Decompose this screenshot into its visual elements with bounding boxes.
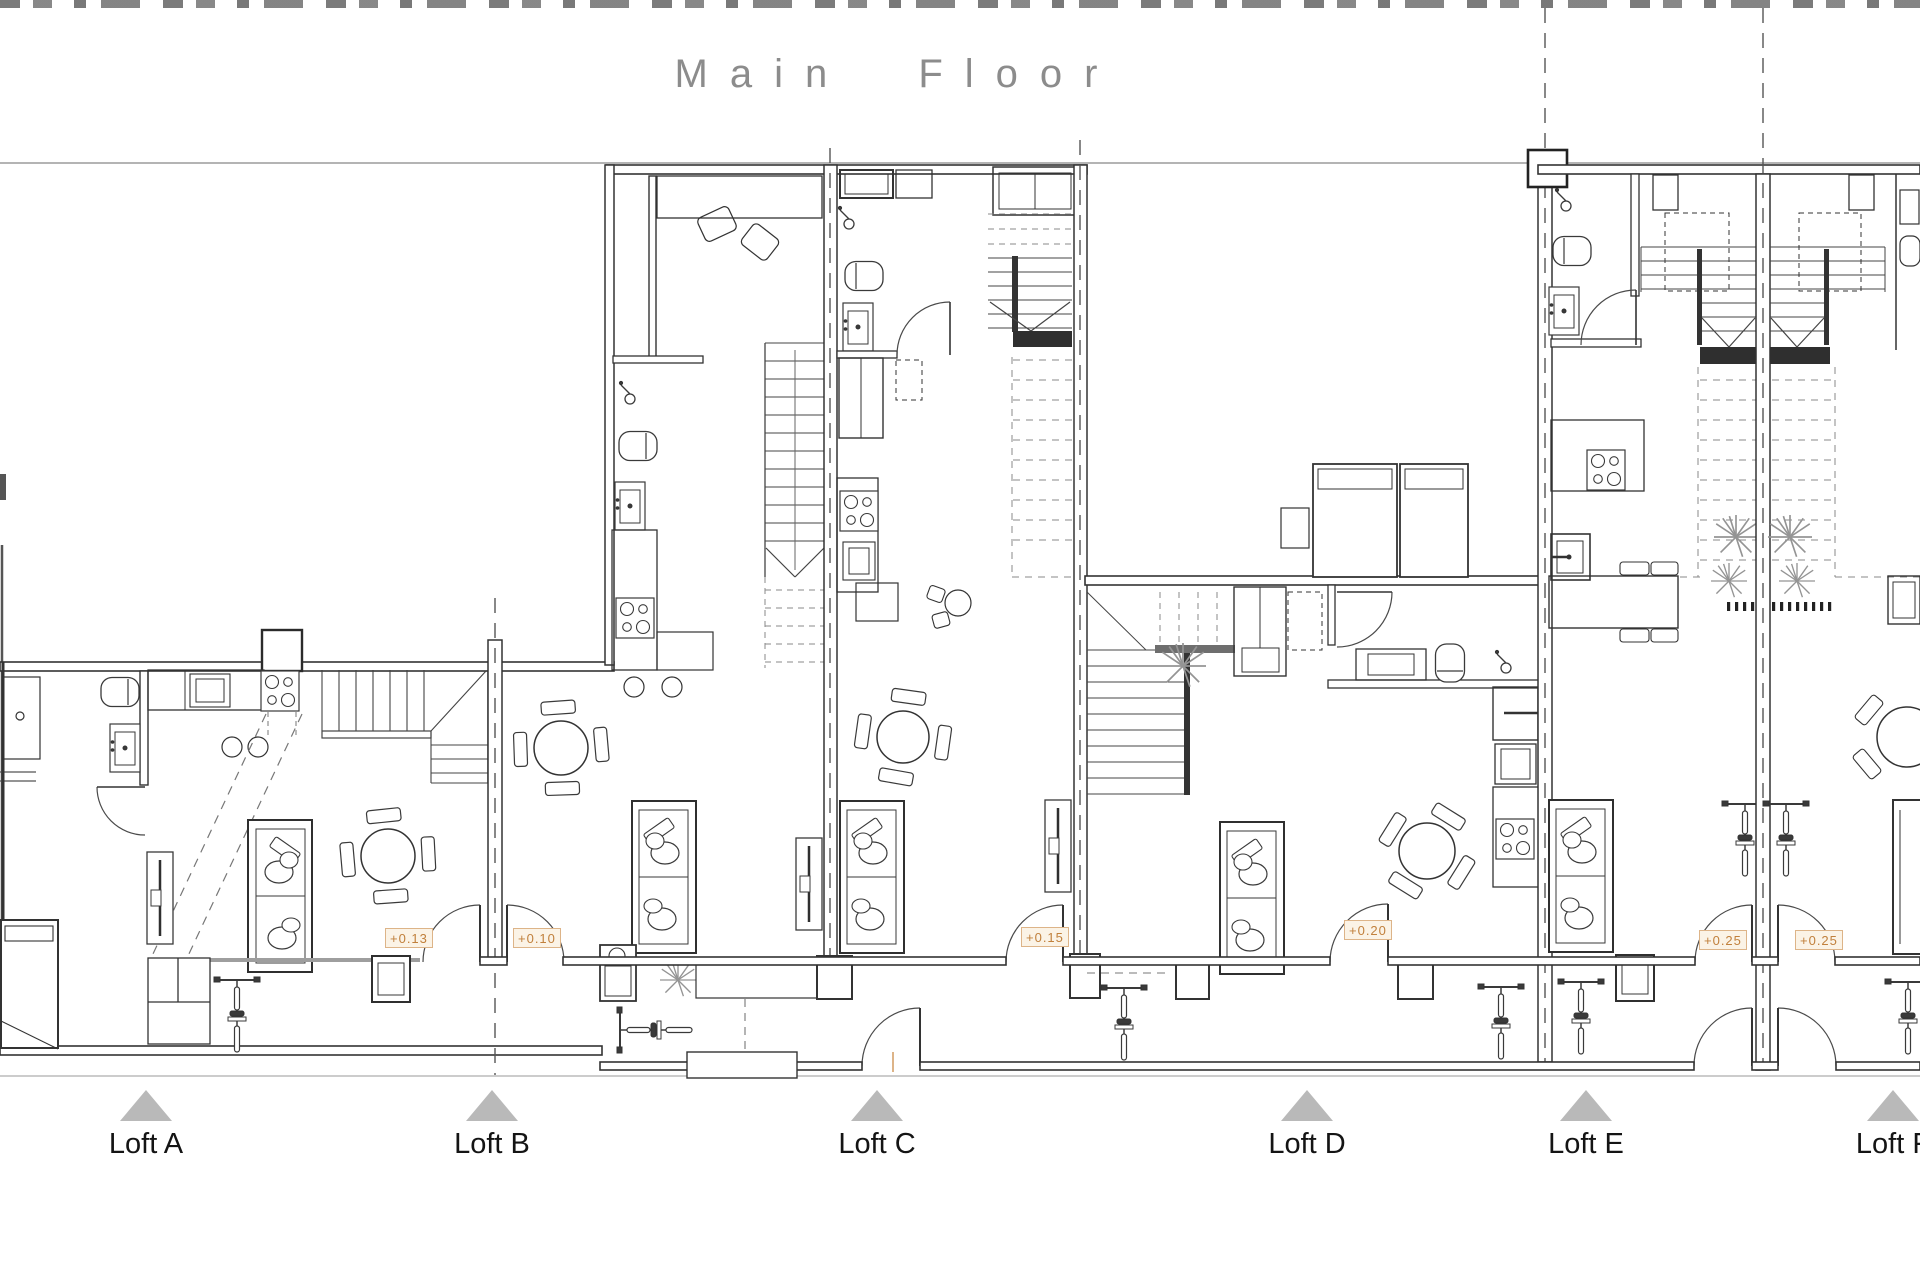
sofa bbox=[1220, 822, 1284, 974]
washbasin-icon bbox=[110, 724, 140, 772]
loft-b-label: Loft B bbox=[454, 1128, 530, 1161]
palm-plant-icon bbox=[1711, 563, 1747, 597]
shower-icon bbox=[838, 206, 854, 229]
palm-plant-icon bbox=[1779, 563, 1815, 597]
planter-hatch bbox=[1727, 602, 1754, 611]
wall-column bbox=[262, 630, 302, 671]
loft-f-entrance-triangle-icon bbox=[1867, 1090, 1919, 1121]
planter-hatch bbox=[1772, 602, 1831, 611]
loft-e-label: Loft E bbox=[1548, 1128, 1624, 1161]
loft-b-dining-table bbox=[513, 700, 609, 796]
loft-b-stairs bbox=[765, 343, 825, 668]
loft-e-kitchen bbox=[1551, 420, 1644, 580]
loft-a-stairs bbox=[322, 670, 488, 783]
bicycle-icon bbox=[1478, 984, 1524, 1059]
toilet-icon bbox=[619, 432, 657, 461]
party-wall-a-b bbox=[488, 598, 502, 1075]
loft-a-label: Loft A bbox=[109, 1128, 183, 1161]
stove-icon bbox=[840, 491, 878, 531]
sofa bbox=[248, 820, 312, 972]
entry-steps bbox=[148, 958, 210, 1044]
loft-d-wardrobe bbox=[1234, 587, 1322, 676]
loft-f-label: Loft F bbox=[1856, 1128, 1920, 1161]
bicycle-icon bbox=[1885, 979, 1920, 1054]
floor-plan-drawing bbox=[0, 0, 1920, 1280]
loft-a-bed bbox=[1, 920, 58, 1049]
toilet-icon bbox=[101, 678, 139, 707]
washbasin-icon bbox=[615, 482, 645, 530]
loft-a-bathroom bbox=[3, 671, 148, 835]
loft-d-dining-table bbox=[1378, 802, 1476, 900]
loft-e-bathroom bbox=[1549, 174, 1641, 347]
floor-plan-sheet: Main Floor bbox=[0, 0, 1920, 1280]
washbasin-icon bbox=[1549, 287, 1579, 335]
loft-d-bathroom bbox=[1328, 585, 1541, 688]
elevation-marker-loft-d: +0.20 bbox=[1344, 920, 1392, 940]
stove-icon bbox=[1496, 819, 1534, 859]
shower-icon bbox=[619, 381, 635, 404]
loft-d-entrance-triangle-icon bbox=[1281, 1090, 1333, 1121]
palm-plant-icon bbox=[1768, 515, 1812, 557]
loft-a-kitchen bbox=[148, 670, 299, 757]
loft-a-entrance-triangle-icon bbox=[120, 1090, 172, 1121]
elevation-marker-loft-c: +0.15 bbox=[1021, 927, 1069, 947]
palm-plant-icon bbox=[660, 962, 696, 996]
loft-f-porch bbox=[1778, 979, 1920, 1066]
tv-unit bbox=[147, 852, 173, 944]
elevation-marker-loft-b: +0.10 bbox=[513, 928, 561, 948]
loft-b-entrance-triangle-icon bbox=[466, 1090, 518, 1121]
sofa bbox=[632, 801, 696, 953]
shower-icon bbox=[1495, 650, 1511, 673]
loft-d-kitchen bbox=[1493, 687, 1539, 887]
bicycle-icon bbox=[617, 1007, 692, 1053]
palm-plant-icon bbox=[1714, 515, 1758, 557]
stove-icon bbox=[261, 671, 299, 711]
loft-c-dining-table bbox=[854, 688, 952, 786]
tv-unit bbox=[1045, 800, 1071, 892]
loft-d-porch bbox=[1101, 960, 1524, 1060]
toilet-icon bbox=[1436, 644, 1465, 682]
sofa bbox=[1549, 800, 1613, 952]
bicycle-icon bbox=[214, 977, 260, 1052]
party-wall-c-d bbox=[1070, 140, 1170, 998]
stove-icon bbox=[1587, 450, 1625, 490]
loft-d-label: Loft D bbox=[1268, 1128, 1345, 1161]
elevation-marker-loft-e: +0.25 bbox=[1699, 930, 1747, 950]
entry-step bbox=[687, 1052, 797, 1078]
loft-f-stairs bbox=[1770, 247, 1920, 577]
elevation-marker-loft-f: +0.25 bbox=[1795, 930, 1843, 950]
washbasin-icon bbox=[843, 303, 873, 351]
loft-c-label: Loft C bbox=[838, 1128, 915, 1161]
loft-d-beds bbox=[1281, 464, 1468, 577]
loft-b-desk bbox=[657, 176, 822, 262]
loft-e-dining-table bbox=[1549, 562, 1678, 642]
loft-e-entrance-triangle-icon bbox=[1560, 1090, 1612, 1121]
tv-unit bbox=[796, 838, 822, 930]
loft-c-bathroom bbox=[837, 206, 950, 358]
toilet-icon bbox=[1553, 237, 1591, 266]
loft-f-dining-table bbox=[1852, 694, 1920, 780]
loft-e-stairs bbox=[1641, 247, 1756, 577]
bicycle-icon bbox=[1101, 985, 1147, 1060]
sofa bbox=[840, 801, 904, 953]
loft-c-kitchen bbox=[837, 478, 971, 629]
loft-b-kitchen bbox=[612, 530, 713, 697]
loft-c-entrance-triangle-icon bbox=[851, 1090, 903, 1121]
loft-a-dining-table bbox=[340, 807, 436, 904]
stove-icon bbox=[616, 598, 654, 638]
shoe-cabinet bbox=[372, 956, 410, 1002]
loft-a-unit bbox=[0, 630, 614, 1055]
loft-c-stairs bbox=[988, 214, 1075, 577]
loft-f-bathroom bbox=[1896, 174, 1920, 350]
loft-e-porch bbox=[1558, 955, 1752, 1066]
elevation-marker-loft-a: +0.13 bbox=[385, 928, 433, 948]
loft-d-unit bbox=[1085, 464, 1541, 1060]
loft-d-stairs bbox=[1087, 592, 1235, 795]
loft-f-sofa bbox=[1893, 800, 1920, 954]
toilet-icon bbox=[845, 262, 883, 291]
bicycle-icon bbox=[1558, 979, 1604, 1054]
loft-b-bathroom bbox=[613, 356, 703, 530]
loft-c-porch bbox=[862, 1008, 920, 1072]
shower-icon bbox=[1555, 188, 1571, 211]
